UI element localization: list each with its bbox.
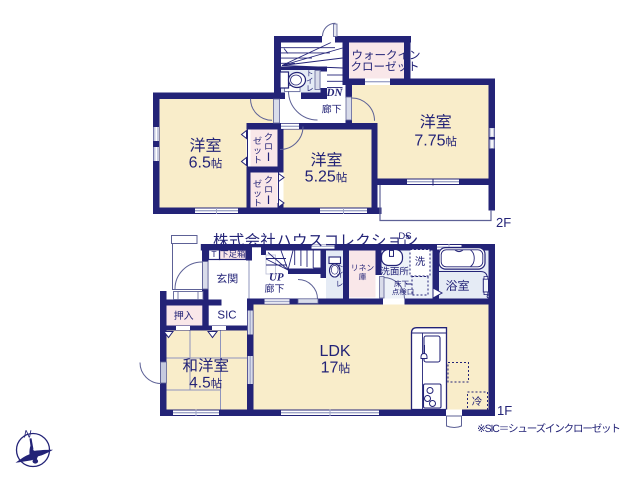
svg-text:1F: 1F [497,403,512,418]
svg-text:イ: イ [336,271,344,280]
svg-text:点検口: 点検口 [392,288,415,297]
svg-text:クローゼット: クローゼット [351,61,420,74]
svg-text:T: T [211,249,216,259]
svg-text:下足箱: 下足箱 [220,249,246,259]
svg-text:洗面所: 洗面所 [380,267,409,278]
svg-text:廊下: 廊下 [322,104,342,116]
svg-text:洋室: 洋室 [420,114,452,132]
svg-text:リネン: リネン [351,264,375,273]
svg-text:洗: 洗 [415,256,426,268]
svg-text:17帖: 17帖 [321,360,351,377]
svg-text:ト: ト [253,198,262,208]
svg-text:株式会社ハウスコレクション: 株式会社ハウスコレクション [213,232,418,250]
svg-text:LDK: LDK [319,343,350,360]
svg-text:洋室: 洋室 [189,137,221,155]
svg-text:冷: 冷 [472,396,483,408]
svg-text:2F: 2F [496,215,511,230]
svg-text:ッ: ッ [253,146,262,156]
svg-text:ゼ: ゼ [253,179,262,189]
svg-text:和洋室: 和洋室 [182,357,229,375]
svg-text:ゼ: ゼ [253,136,262,146]
svg-text:ウォークイン: ウォークイン [352,49,421,62]
svg-text:浴室: 浴室 [445,279,469,293]
svg-text:ッ: ッ [253,189,262,199]
svg-text:押入: 押入 [174,310,194,322]
svg-text:※SIC＝シューズインクローゼット: ※SIC＝シューズインクローゼット [477,423,620,435]
svg-text:庫: 庫 [359,273,367,282]
svg-text:レ: レ [336,280,344,289]
svg-text:ロ: ロ [264,185,273,195]
svg-text:DN: DN [326,87,344,99]
svg-text:ク: ク [264,132,273,142]
svg-text:玄関: 玄関 [216,273,238,286]
svg-text:ト: ト [253,155,262,165]
svg-text:SIC: SIC [217,310,236,322]
svg-text:レ: レ [306,84,314,93]
svg-text:UP: UP [269,272,284,284]
svg-text:ロ: ロ [264,142,273,152]
svg-text:洋室: 洋室 [310,152,342,170]
svg-text:ク: ク [264,175,273,185]
svg-text:廊下: 廊下 [265,283,285,295]
